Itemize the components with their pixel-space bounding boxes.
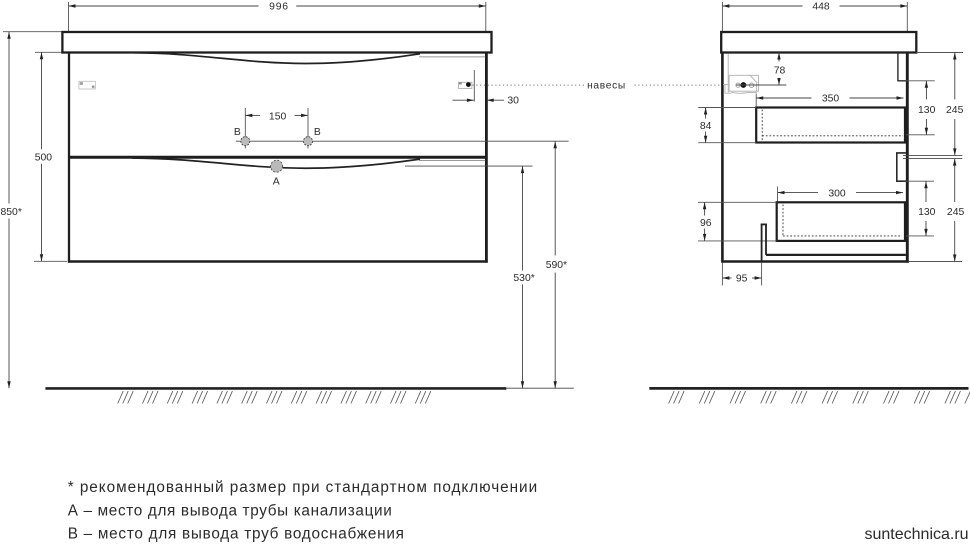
svg-text:B: B bbox=[234, 127, 241, 138]
svg-text:A: A bbox=[273, 176, 280, 187]
svg-text:350: 350 bbox=[822, 94, 840, 105]
svg-text:96: 96 bbox=[700, 218, 712, 229]
svg-text:448: 448 bbox=[812, 2, 830, 13]
svg-text:150: 150 bbox=[269, 111, 287, 122]
svg-text:А – место для вывода трубы кан: А – место для вывода трубы канализации bbox=[68, 503, 393, 520]
svg-text:245: 245 bbox=[947, 207, 965, 218]
svg-text:530*: 530* bbox=[513, 273, 534, 284]
svg-text:245: 245 bbox=[946, 105, 964, 116]
svg-text:130: 130 bbox=[918, 207, 936, 218]
svg-text:996: 996 bbox=[269, 2, 289, 13]
svg-text:95: 95 bbox=[736, 274, 748, 285]
svg-text:78: 78 bbox=[774, 66, 786, 77]
svg-text:850*: 850* bbox=[1, 207, 22, 218]
svg-text:30: 30 bbox=[507, 96, 519, 107]
svg-text:300: 300 bbox=[828, 188, 846, 199]
svg-text:* рекомендованный размер при с: * рекомендованный размер при стандартном… bbox=[68, 479, 538, 496]
svg-text:навесы: навесы bbox=[587, 81, 626, 92]
svg-text:130: 130 bbox=[918, 105, 936, 116]
svg-text:590*: 590* bbox=[546, 260, 567, 271]
svg-text:В – место для вывода труб водо: В – место для вывода труб водоснабжения bbox=[68, 526, 405, 543]
svg-text:500: 500 bbox=[35, 152, 53, 163]
svg-text:suntechnica.ru: suntechnica.ru bbox=[865, 526, 969, 543]
svg-text:B: B bbox=[314, 127, 321, 138]
svg-text:84: 84 bbox=[700, 121, 712, 132]
